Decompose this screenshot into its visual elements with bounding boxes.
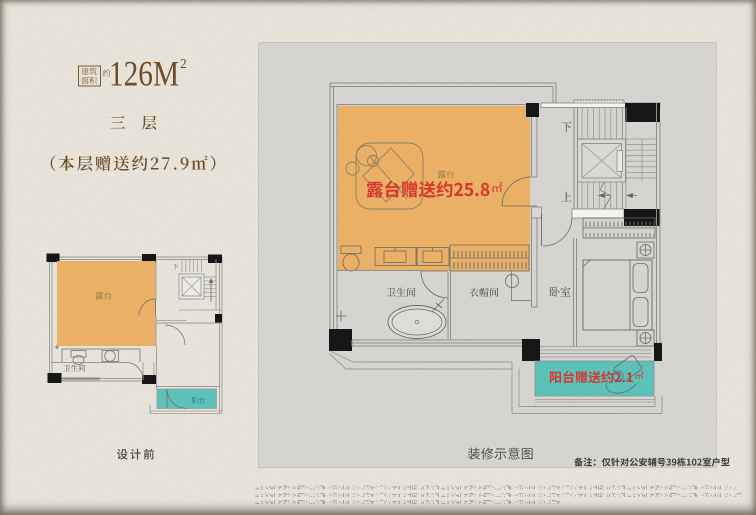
svg-text:2: 2 [180,56,187,71]
svg-text:126M: 126M [109,54,179,94]
